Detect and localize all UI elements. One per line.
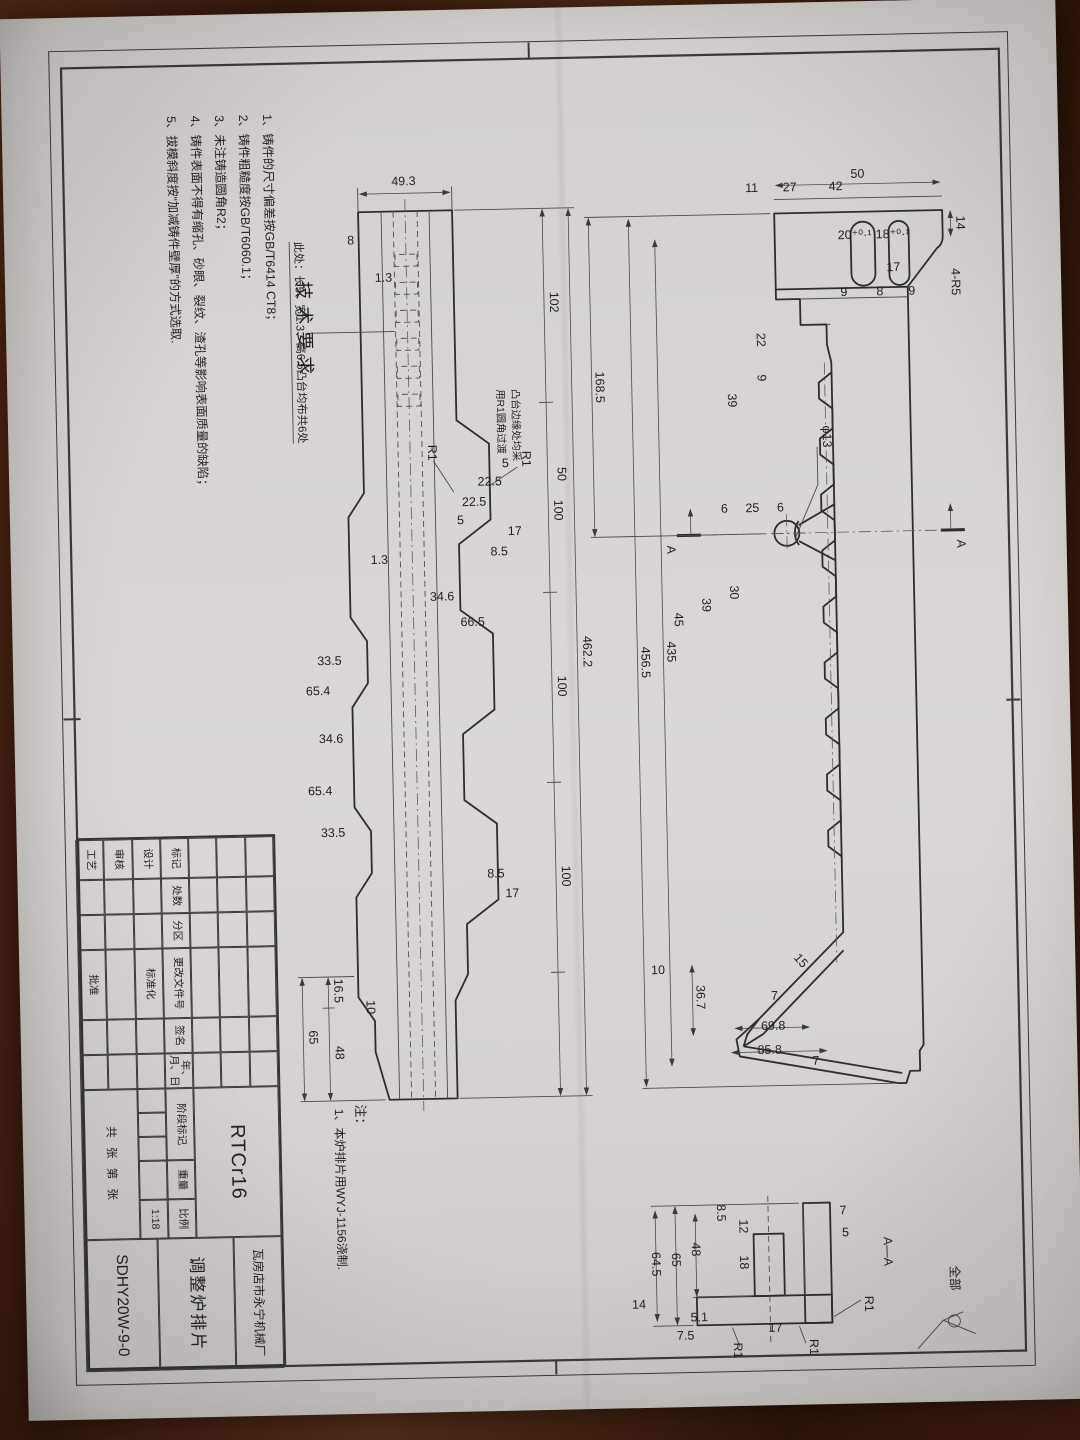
- dim-label: 16.5: [331, 979, 346, 1004]
- title-block-cell: [108, 1054, 138, 1090]
- title-block-cell: [250, 1051, 279, 1087]
- title-block-cell: [104, 879, 134, 915]
- dim-label: 7.5: [677, 1328, 695, 1342]
- title-block-cell: [247, 946, 276, 1017]
- title-block-header-changefile: 更改文件号: [162, 948, 191, 1019]
- dim-label: 1.3: [371, 553, 389, 567]
- title-block-design: 设计: [132, 839, 161, 880]
- title-block-stage-label: 阶段标记: [165, 1088, 195, 1161]
- title-block-cell: [246, 876, 275, 912]
- dim-label: 39: [725, 393, 739, 407]
- dim-label: 12: [736, 1219, 750, 1233]
- title-block-cell: [188, 837, 217, 878]
- dim-label: 34.6: [319, 732, 344, 747]
- dim-label: 22: [754, 333, 768, 347]
- title-block-cell: [134, 914, 163, 950]
- dim-label: 33.5: [321, 826, 346, 841]
- dim-label: 8: [347, 233, 354, 247]
- title-block-cell: [190, 912, 219, 948]
- dim-label: A: [664, 545, 678, 554]
- side-dim-lines: [584, 182, 969, 1089]
- fillet-note-line2: 用R1圆角过渡: [491, 389, 507, 461]
- dim-label: 8.5: [714, 1204, 728, 1222]
- title-block-cell: [193, 1052, 222, 1088]
- title-block-cell: [190, 947, 219, 1018]
- title-block-cell: [217, 877, 247, 913]
- dim-label: A—A: [881, 1237, 896, 1267]
- title-block-cell: [218, 947, 248, 1018]
- title-block-header-zone: 分区: [162, 913, 191, 949]
- dim-label: 435: [664, 641, 678, 662]
- drawing-landscape: 50422711144-R517918⁺⁰·¹820⁺⁰·¹922939168.…: [46, 29, 1039, 1389]
- dim-label: 7: [839, 1203, 846, 1217]
- fillet-note-line1: 凸台边缘处均采: [506, 389, 522, 461]
- dim-label: 17: [508, 524, 522, 538]
- dim-label: R1: [731, 1342, 745, 1358]
- dim-label: 8.5: [490, 544, 508, 558]
- dim-label: 6: [721, 502, 728, 516]
- title-block-cell: [220, 1017, 250, 1053]
- dim-label: 7: [771, 989, 778, 1003]
- title-block-standardization: 标准化: [134, 949, 163, 1020]
- dim-label: 65.4: [306, 684, 331, 699]
- title-block-cell: [137, 1053, 166, 1089]
- plan-view: [282, 184, 593, 1114]
- dim-label: 5.1: [690, 1310, 708, 1324]
- dim-label: 9: [755, 374, 769, 381]
- dim-label: 39: [699, 598, 713, 612]
- title-block-approve: 批准: [77, 950, 106, 1021]
- title-block-cell: [247, 911, 276, 947]
- title-block-cell: [221, 1052, 251, 1088]
- title-block-header-count: 处数: [161, 878, 190, 914]
- title-block-drawing-no: SDHY20W-9-0: [84, 1239, 161, 1373]
- dim-label: 20⁺⁰·¹: [838, 227, 872, 242]
- dim-label: 8: [876, 284, 883, 298]
- dim-label: 85.8: [757, 1043, 782, 1058]
- title-block-company: 瓦房店市永宁机械厂: [233, 1236, 284, 1369]
- dim-label: 66.5: [460, 615, 485, 630]
- title-block-cell: [218, 912, 248, 948]
- dim-label: 10: [651, 963, 665, 977]
- title-block-weight-label: 重量: [167, 1160, 196, 1200]
- title-block-header-mark: 标记: [160, 838, 189, 879]
- dim-label: 48: [333, 1046, 347, 1060]
- dim-label: φ13: [820, 425, 834, 447]
- dim-label: 10: [364, 1000, 378, 1014]
- dim-label: R1: [862, 1296, 876, 1312]
- dim-label: 14: [632, 1297, 646, 1311]
- title-block-weight-value: [139, 1160, 168, 1200]
- dim-label: 168.5: [592, 371, 607, 403]
- plan-dim-lines: [282, 184, 593, 1102]
- title-block-cell: [249, 1016, 278, 1052]
- title-block-cell: [192, 1017, 221, 1053]
- dim-label: 30: [727, 585, 741, 599]
- dim-label: 6: [777, 500, 784, 514]
- section-a-a-view: [651, 1192, 976, 1355]
- dim-label: 100: [551, 500, 565, 521]
- title-block-header-signature: 签名: [164, 1018, 193, 1054]
- dim-label: 34.6: [430, 589, 455, 604]
- dim-label: 102: [547, 292, 561, 313]
- dim-label: 69.8: [761, 1018, 786, 1033]
- dim-label: 7: [812, 1054, 819, 1068]
- dim-label: 14: [953, 216, 967, 230]
- dim-label: 4-R5: [948, 268, 963, 295]
- title-block-cell: [107, 1019, 137, 1055]
- title-block-material: RTCr16: [193, 1086, 281, 1238]
- dim-label: 42: [829, 179, 843, 193]
- title-block-scale-label: 比例: [168, 1199, 197, 1239]
- paper-sheet: 50422711144-R517918⁺⁰·¹820⁺⁰·¹922939168.…: [0, 0, 1080, 1421]
- title-block-review: 审核: [103, 839, 133, 880]
- title-block-cell: [79, 1020, 108, 1056]
- dim-label: 50: [850, 167, 864, 181]
- title-block-scale-value: 1:18: [140, 1199, 169, 1239]
- dim-label: 456.5: [638, 647, 653, 679]
- title-block-cell: [136, 1018, 165, 1054]
- dim-label: 64.5: [649, 1252, 664, 1277]
- dim-label: 8.5: [487, 866, 505, 880]
- title-block-sheet: 共 张 第 张: [80, 1089, 140, 1240]
- title-block-cell: [245, 836, 274, 877]
- dim-label: 1.3: [375, 271, 393, 285]
- dim-label: 5: [457, 513, 464, 527]
- dim-label: 33.5: [317, 654, 342, 669]
- dim-label: 49.3: [391, 174, 416, 189]
- dim-label: R1: [425, 445, 439, 461]
- dim-label: 17: [886, 260, 900, 274]
- dim-label: 17: [505, 886, 519, 900]
- title-block-stage-box: [138, 1112, 166, 1137]
- title-block-cell: [77, 915, 106, 951]
- dim-label: R1: [807, 1339, 821, 1355]
- dim-label: 50: [554, 467, 568, 481]
- dim-label: 100: [555, 676, 569, 697]
- title-block-cell: [105, 914, 135, 950]
- dim-label: 22.5: [477, 474, 502, 489]
- surface-finish-icon: [917, 1312, 976, 1349]
- title-block-cell: [189, 877, 218, 913]
- title-block-cell: [76, 880, 105, 916]
- title-block-header-date: 年、月、日: [165, 1053, 194, 1089]
- dim-label: 25: [745, 501, 759, 515]
- dim-label: 100: [559, 865, 573, 886]
- side-elevation-view: [584, 182, 977, 1090]
- photo-root: 50422711144-R517918⁺⁰·¹820⁺⁰·¹922939168.…: [0, 0, 1080, 1440]
- dim-label: 18⁺⁰·¹: [876, 227, 910, 242]
- dim-label: 9: [908, 284, 915, 298]
- dim-label: A: [954, 539, 968, 548]
- title-block-cell: [133, 879, 162, 915]
- dim-label: 65: [306, 1030, 320, 1044]
- dim-label: 462.2: [580, 636, 595, 668]
- dim-label: 27: [783, 180, 797, 194]
- dim-label: 9: [840, 285, 847, 299]
- boss-rects: [395, 254, 420, 406]
- dim-label: 22.5: [462, 495, 487, 510]
- dim-label: 5: [842, 1225, 849, 1239]
- dim-label: 48: [689, 1242, 703, 1256]
- title-block-process: 工艺: [75, 840, 104, 881]
- title-block-cell: [105, 949, 135, 1020]
- notes-block: 注： 1、本炉排片用WYJ-1156浇制.: [331, 1104, 377, 1375]
- title-block-stage-box: [137, 1088, 165, 1113]
- dim-label: 65.4: [308, 784, 333, 799]
- title-block-cell: [80, 1055, 109, 1091]
- dim-label: 17: [768, 1321, 782, 1335]
- dim-label: 36.7: [693, 985, 708, 1010]
- title-block: 标记 处数 分区 更改文件号 签名 年、月、日 设计 标准化 审核 工艺: [77, 834, 286, 1370]
- title-block-cell: [216, 837, 246, 878]
- title-block-stage-box: [138, 1136, 166, 1161]
- dim-label: 11: [745, 181, 758, 195]
- dim-label: 45: [672, 613, 686, 627]
- dim-label: 65: [669, 1253, 683, 1267]
- fillet-note: 凸台边缘处均采 用R1圆角过渡: [491, 389, 522, 462]
- dim-label: 18: [737, 1255, 751, 1269]
- title-block-part-name: 调整炉排片: [158, 1237, 237, 1371]
- dim-label: 全部: [947, 1265, 963, 1290]
